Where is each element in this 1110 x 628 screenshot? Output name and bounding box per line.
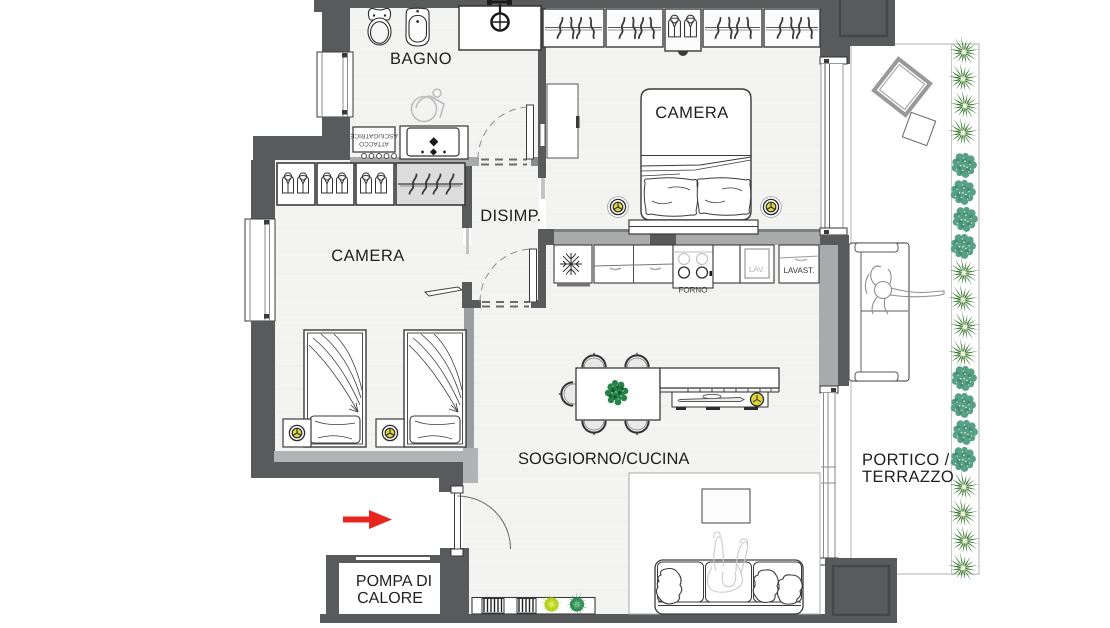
- svg-text:CALORE: CALORE: [357, 590, 423, 607]
- svg-text:PORTICO /: PORTICO /: [862, 451, 950, 469]
- svg-text:LAV.: LAV.: [749, 265, 765, 274]
- svg-text:LAVAST.: LAVAST.: [784, 266, 815, 275]
- svg-text:TERRAZZO: TERRAZZO: [862, 468, 954, 486]
- svg-text:ATTACCO: ATTACCO: [359, 140, 389, 147]
- svg-text:FORNO: FORNO: [679, 286, 708, 295]
- svg-text:CAMERA: CAMERA: [331, 247, 405, 265]
- svg-text:SOGGIORNO/CUCINA: SOGGIORNO/CUCINA: [518, 450, 689, 468]
- svg-text:CAMERA: CAMERA: [655, 104, 729, 122]
- svg-text:BAGNO: BAGNO: [390, 50, 452, 68]
- svg-text:DISIMP.: DISIMP.: [480, 207, 541, 225]
- svg-text:POMPA DI: POMPA DI: [356, 573, 432, 590]
- svg-text:ASCIUGATRICE: ASCIUGATRICE: [350, 132, 397, 139]
